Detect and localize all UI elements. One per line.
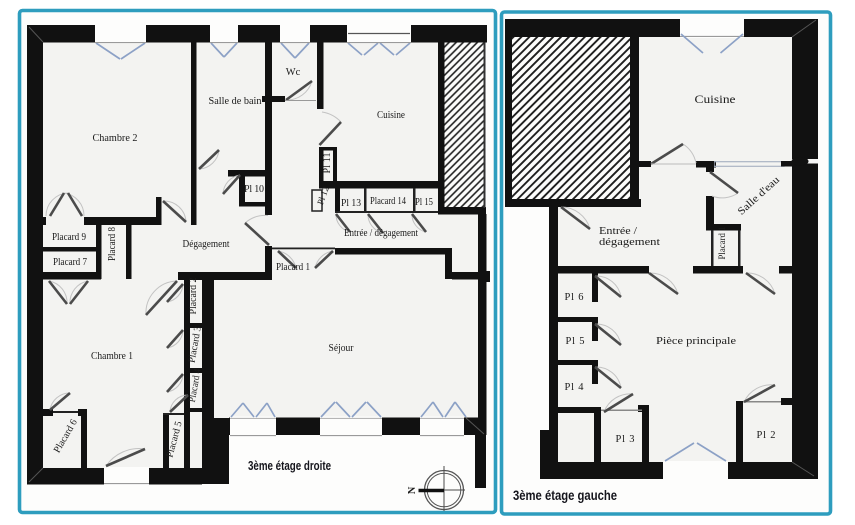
svg-text:dégagement: dégagement [599,237,660,248]
svg-text:Pl 2: Pl 2 [757,430,776,441]
svg-text:Placard 14: Placard 14 [370,196,406,207]
svg-text:Cuisine: Cuisine [695,94,736,106]
svg-text:Placard 9: Placard 9 [52,232,86,243]
svg-text:Pl 4: Pl 4 [565,382,585,393]
svg-text:Pl 11: Pl 11 [322,153,333,174]
svg-text:Pl 5: Pl 5 [566,336,585,347]
svg-text:Placard 7: Placard 7 [53,257,87,268]
svg-text:Pièce principale: Pièce principale [656,335,736,347]
svg-text:Placard 1: Placard 1 [718,226,728,259]
svg-text:Placard 8: Placard 8 [107,227,118,261]
svg-text:Salle de bain: Salle de bain [209,96,263,107]
svg-text:Cuisine: Cuisine [377,110,405,121]
svg-text:Entrée /: Entrée / [599,226,637,237]
svg-text:Placard 1: Placard 1 [276,262,310,273]
svg-text:Wc: Wc [286,67,301,78]
svg-text:Entrée / dégagement: Entrée / dégagement [344,228,418,239]
svg-text:Pl 13: Pl 13 [341,198,361,209]
svg-text:Dégagement: Dégagement [183,239,230,250]
svg-text:3ème étage gauche: 3ème étage gauche [513,487,617,503]
svg-text:Pl 15: Pl 15 [415,197,433,208]
svg-text:Pl 10: Pl 10 [244,184,264,195]
svg-text:N: N [407,486,418,494]
svg-text:Pl 6: Pl 6 [565,292,584,303]
svg-text:Placard 2: Placard 2 [188,278,199,315]
svg-text:Pl 3: Pl 3 [616,434,635,445]
svg-text:Chambre 1: Chambre 1 [91,351,133,362]
svg-text:Chambre 2: Chambre 2 [93,132,138,144]
svg-text:Séjour: Séjour [329,343,354,354]
svg-text:3ème étage droite: 3ème étage droite [248,458,331,473]
